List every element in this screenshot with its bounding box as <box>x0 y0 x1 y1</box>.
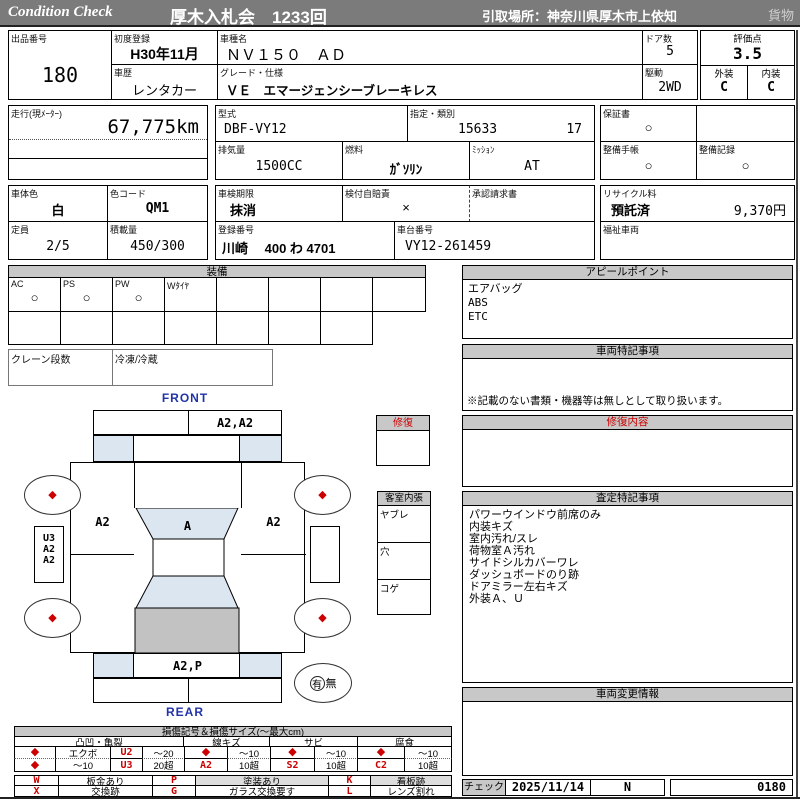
exterior-grade-label: 外装 <box>701 66 747 80</box>
chassis-number-cell: 車台番号 VY12-261459 <box>394 221 595 260</box>
recycle-status-value: 預託済 <box>611 200 650 219</box>
rear-left-fender <box>94 654 134 677</box>
left-panel-divider <box>71 554 134 555</box>
lot-number-cell: 出品番号 180 <box>8 30 112 100</box>
maintenance-book-label: 整備手帳 <box>603 143 639 156</box>
doors-cell: ドア数 5 <box>642 30 698 65</box>
vehicle-notes-disclaimer: ※記載のない書類・機器等は無しとして取り扱います。 <box>467 393 728 408</box>
diamond-icon: ◆ <box>288 747 296 758</box>
equipment-row2-cell-2 <box>60 311 113 345</box>
legend-code-g: G <box>152 785 196 797</box>
mileage-value: 67,775km <box>107 116 199 138</box>
check-date-cell: 2025/11/14 <box>505 779 591 796</box>
chassis-number-label: 車台番号 <box>397 223 433 236</box>
maintenance-record-cell: 整備記録 ○ <box>696 141 795 180</box>
check-inspector-cell: N <box>590 779 665 796</box>
maintenance-book-value: ○ <box>601 158 696 173</box>
mileage-divider-solid <box>9 158 207 159</box>
change-info-panel: 車両変更情報 <box>462 687 793 776</box>
equipment-cell-ps: PS ○ <box>60 277 113 312</box>
legend-desc-g: ガラス交換要す <box>195 785 329 797</box>
appeal-item-abs: ABS <box>468 296 787 310</box>
auction-title: 厚木入札会 1233回 <box>170 3 327 28</box>
body-color-cell: 車体色 白 <box>8 185 108 222</box>
capacity-label: 定員 <box>11 223 29 236</box>
rear-bumper-divider <box>188 679 189 702</box>
hood-line-right <box>241 463 242 508</box>
color-code-label: 色コード <box>110 187 146 200</box>
repair-absent-mark: 無 <box>326 675 337 691</box>
sheet-right-border <box>796 30 798 797</box>
assessment-item-3: 室内汚れ/スレ <box>469 533 786 545</box>
maintenance-record-label: 整備記録 <box>699 143 735 156</box>
body-color-label: 車体色 <box>11 187 38 200</box>
doors-value: 5 <box>643 44 697 59</box>
drive-value: 2WD <box>643 80 697 95</box>
grade-label: グレード・仕様 <box>220 66 283 79</box>
equipment-row2-cell-5 <box>216 311 269 345</box>
equipment-label-wtire: Wﾀｲﾔ <box>167 279 189 292</box>
inspection-value: 抹消 <box>230 200 256 219</box>
legend-dent-text-2: ～10 <box>55 758 111 772</box>
color-code-value: QM1 <box>108 201 207 216</box>
equipment-cell-empty-3 <box>320 277 373 312</box>
warranty-empty-cell <box>696 105 795 142</box>
mileage-cell: 走行(現ﾒｰﾀｰ) 67,775km <box>8 105 208 180</box>
registration-number-label: 登録番号 <box>218 223 254 236</box>
change-info-title: 車両変更情報 <box>463 688 792 702</box>
repair-present-mark: 有 <box>310 676 325 691</box>
insurance-label: 検付自賠責 <box>345 187 390 200</box>
legend-scratch-code: A2 <box>184 758 228 772</box>
exterior-grade-cell: 外装 C <box>700 65 748 100</box>
front-left-fender <box>94 436 134 461</box>
maintenance-book-cell: 整備手帳 ○ <box>600 141 697 180</box>
legend-corrosion-code: C2 <box>357 758 405 772</box>
repair-mini-box: 修復 <box>376 415 430 466</box>
damage-marker-icon: ◆ <box>318 490 326 501</box>
cabin-interior-box: 客室内張 ヤブレ 穴 コゲ <box>377 491 431 615</box>
rear-fender-strip: A2,P <box>93 653 282 678</box>
recycle-fee-value: 9,370円 <box>734 200 786 219</box>
score-value: 3.5 <box>701 44 794 63</box>
equipment-cell-empty-2 <box>268 277 321 312</box>
diamond-icon: ◆ <box>31 760 39 771</box>
drive-label: 駆動 <box>645 66 663 79</box>
rear-right-fender <box>239 654 281 677</box>
refrigeration-label: 冷凍/冷蔵 <box>115 351 158 366</box>
transmission-cell: ﾐｯｼｮﾝ AT <box>469 141 595 180</box>
damage-marker-icon: ◆ <box>48 613 56 624</box>
equipment-row2-cell-4 <box>164 311 217 345</box>
equipment-cell-wtire: Wﾀｲﾔ <box>164 277 217 312</box>
check-label-cell: チェック <box>462 779 506 796</box>
legend-corrosion-size-2: 10超 <box>404 758 452 772</box>
refrigeration-cell: 冷凍/冷蔵 <box>112 349 273 386</box>
right-front-panel-damage: A2 <box>241 515 306 529</box>
lot-number-label: 出品番号 <box>11 32 47 45</box>
car-body: A A2 A2 <box>70 462 305 653</box>
equipment-value-ps: ○ <box>61 290 112 305</box>
repair-history-flag: 有無 <box>294 663 352 703</box>
drive-cell: 駆動 2WD <box>642 64 698 100</box>
crane-label: クレーン段数 <box>11 351 71 366</box>
load-capacity-label: 積載量 <box>110 223 137 236</box>
damage-marker-icon: ◆ <box>48 490 56 501</box>
equipment-row2-cell-6 <box>268 311 321 345</box>
capacity-cell: 定員 2/5 <box>8 221 108 260</box>
legend-code-x: X <box>14 785 59 797</box>
mileage-divider-dotted <box>9 139 207 140</box>
left-side-damage-1: U3 <box>35 533 63 544</box>
equipment-row2-cell-7 <box>320 311 373 345</box>
grade-value: ＶＥ エマージェンシーブレーキレス <box>226 80 438 99</box>
maintenance-record-value: ○ <box>697 158 794 173</box>
approval-request-label: 承認請求書 <box>472 187 517 200</box>
class-number-value: 15633 <box>458 122 497 137</box>
front-fender-strip <box>93 435 282 462</box>
grade-cell: グレード・仕様 ＶＥ エマージェンシーブレーキレス <box>217 64 643 100</box>
warranty-label: 保証書 <box>603 107 630 120</box>
legend-rust-code: S2 <box>270 758 315 772</box>
insurance-value: × <box>343 200 469 215</box>
insurance-cell: 検付自賠責 × <box>342 185 470 222</box>
inspection-label: 車検期限 <box>218 187 254 200</box>
crane-cell: クレーン段数 <box>8 349 113 386</box>
diamond-icon: ◆ <box>202 747 210 758</box>
assessment-notes-title: 査定特記事項 <box>463 492 792 506</box>
welfare-vehicle-label: 福祉車両 <box>603 223 639 236</box>
equipment-value-pw: ○ <box>113 290 164 305</box>
appeal-item-airbag: エアバッグ <box>468 282 787 296</box>
equipment-value-ac: ○ <box>9 290 60 305</box>
class-number-label: 指定・類別 <box>410 107 455 120</box>
recycle-fee-cell: リサイクル料 預託済 9,370円 <box>600 185 795 222</box>
wheel-rear-left: ◆ <box>24 598 81 638</box>
welfare-vehicle-cell: 福祉車両 <box>600 221 795 260</box>
load-capacity-cell: 積載量 450/300 <box>107 221 208 260</box>
assessment-item-2: 内装キズ <box>469 521 786 533</box>
legend-dent-marker-2: ◆ <box>14 758 56 772</box>
transmission-label: ﾐｯｼｮﾝ <box>472 143 495 156</box>
sheet-number-cell: 0180 <box>670 779 793 796</box>
diamond-icon: ◆ <box>31 747 39 758</box>
fuel-value: ｶﾞｿﾘﾝ <box>343 159 469 178</box>
score-cell: 評価点 3.5 <box>700 30 795 66</box>
model-code-label: 型式 <box>218 107 236 120</box>
wheel-front-right: ◆ <box>294 475 351 515</box>
history-value: レンタカー <box>112 80 217 99</box>
first-registration-value: H30年11月 <box>112 44 217 64</box>
hood-line-left <box>134 463 135 508</box>
assessment-item-6: ダッシュボードのり跡 <box>469 569 786 581</box>
model-code-cell: 型式 DBF-VY12 <box>215 105 408 142</box>
fuel-cell: 燃料 ｶﾞｿﾘﾝ <box>342 141 470 180</box>
legend-dent-code-2: U3 <box>110 758 143 772</box>
equipment-cell-empty-1 <box>216 277 269 312</box>
brand-logo: Condition Check <box>8 4 113 21</box>
front-right-fender <box>239 436 281 461</box>
damage-marker-icon: ◆ <box>318 613 326 624</box>
fuel-label: 燃料 <box>345 143 363 156</box>
repair-details-panel: 修復内容 <box>462 415 793 487</box>
interior-grade-value: C <box>748 80 794 95</box>
legend-rust-size-2: 10超 <box>314 758 358 772</box>
left-side-damage-3: A2 <box>35 555 63 566</box>
history-label: 車歴 <box>114 66 132 79</box>
legend-dent-size-2: 20超 <box>142 758 185 772</box>
front-direction-label: FRONT <box>130 391 240 405</box>
legend-desc-l: レンズ割れ <box>370 785 452 797</box>
equipment-cell-ac: AC ○ <box>8 277 61 312</box>
equipment-label-ac: AC <box>11 279 24 289</box>
windshield-damage: A <box>134 519 241 533</box>
repair-mini-title: 修復 <box>377 416 429 431</box>
cabin-interior-title: 客室内張 <box>378 492 430 506</box>
first-registration-cell: 初度登録 H30年11月 <box>111 30 218 65</box>
rear-window-shape <box>136 576 238 608</box>
left-side-damage-2: A2 <box>35 544 63 555</box>
capacity-value: 2/5 <box>9 239 107 254</box>
wheel-rear-right: ◆ <box>294 598 351 638</box>
load-capacity-value: 450/300 <box>108 239 207 254</box>
cabin-interior-row-burn: コゲ <box>378 580 430 613</box>
left-front-panel-damage: A2 <box>71 515 134 529</box>
repair-details-title: 修復内容 <box>463 416 792 430</box>
auction-sheet: Condition Check 厚木入札会 1233回 引取場所：神奈川県厚木市… <box>0 0 800 800</box>
sheet-bottom-border <box>0 797 800 799</box>
class-number-value-2: 17 <box>566 122 582 137</box>
vehicle-notes-panel: 車両特記事項 ※記載のない書類・機器等は無しとして取り扱います。 <box>462 344 793 411</box>
cabin-interior-row-hole: 穴 <box>378 543 430 580</box>
right-panel-divider <box>241 554 306 555</box>
score-label: 評価点 <box>701 31 794 45</box>
front-bumper: A2,A2 <box>93 410 282 435</box>
assessment-item-8: 外装Ａ、Ｕ <box>469 593 786 605</box>
mileage-label: 走行(現ﾒｰﾀｰ) <box>11 107 62 120</box>
diamond-icon: ◆ <box>377 747 385 758</box>
appeal-points-panel: アピールポイント エアバッグ ABS ETC <box>462 265 793 339</box>
interior-grade-cell: 内装 C <box>747 65 795 100</box>
displacement-cell: 排気量 1500CC <box>215 141 343 180</box>
class-number-cell: 指定・類別 15633 17 <box>407 105 595 142</box>
recycle-fee-label: リサイクル料 <box>603 187 657 200</box>
displacement-value: 1500CC <box>216 159 342 174</box>
body-color-value: 白 <box>9 200 107 219</box>
assessment-item-7: ドアミラー左右キズ <box>469 581 786 593</box>
front-bumper-damage: A2,A2 <box>188 416 282 430</box>
history-cell: 車歴 レンタカー <box>111 64 218 100</box>
model-name-value: ＮＶ１５０ ＡＤ <box>226 44 346 65</box>
equipment-label-ps: PS <box>63 279 75 289</box>
approval-request-cell: 承認請求書 <box>469 185 595 222</box>
warranty-cell: 保証書 ○ <box>600 105 697 142</box>
equipment-row2-cell-3 <box>112 311 165 345</box>
top-bar: Condition Check 厚木入札会 1233回 引取場所：神奈川県厚木市… <box>0 0 800 27</box>
model-code-value: DBF-VY12 <box>224 122 287 137</box>
legend-desc-x: 交換跡 <box>58 785 153 797</box>
cabin-interior-row-tear: ヤブレ <box>378 506 430 543</box>
rear-panel-damage: A2,P <box>134 659 241 673</box>
registration-number-cell: 登録番号 川崎 400 わ 4701 <box>215 221 395 260</box>
left-side-damage-box: U3 A2 A2 <box>34 526 64 583</box>
equipment-label-pw: PW <box>115 279 130 289</box>
color-code-cell: 色コード QM1 <box>107 185 208 222</box>
assessment-item-4: 荷物室Ａ汚れ <box>469 545 786 557</box>
right-side-damage-box <box>310 526 340 583</box>
appeal-item-etc: ETC <box>468 310 787 324</box>
interior-grade-label: 内装 <box>748 66 794 80</box>
assessment-item-5: サイドシルカバーワレ <box>469 557 786 569</box>
roof-shape <box>153 539 224 576</box>
rear-bumper <box>93 678 282 703</box>
category-badge: 貨物 <box>768 5 794 24</box>
wheel-front-left: ◆ <box>24 475 81 515</box>
equipment-row2-cell-1 <box>8 311 61 345</box>
model-name-cell: 車種名 ＮＶ１５０ ＡＤ <box>217 30 643 65</box>
warranty-value: ○ <box>601 120 696 135</box>
vehicle-notes-title: 車両特記事項 <box>463 345 792 359</box>
exterior-grade-value: C <box>701 80 747 95</box>
registration-number-value: 川崎 400 わ 4701 <box>222 238 335 257</box>
lot-number-value: 180 <box>9 63 111 87</box>
inspection-cell: 車検期限 抹消 <box>215 185 343 222</box>
legend-scratch-size-2: 10超 <box>227 758 271 772</box>
displacement-label: 排気量 <box>218 143 245 156</box>
transmission-value: AT <box>470 159 594 174</box>
legend-code-l: L <box>328 785 371 797</box>
pickup-location: 引取場所：神奈川県厚木市上依知 <box>482 6 677 25</box>
equipment-cell-pw: PW ○ <box>112 277 165 312</box>
equipment-cell-empty-4 <box>372 277 426 312</box>
cargo-area-shape <box>135 608 239 653</box>
assessment-item-1: パワーウインドウ前席のみ <box>469 509 786 521</box>
chassis-number-value: VY12-261459 <box>405 239 491 254</box>
rear-direction-label: REAR <box>130 705 240 719</box>
assessment-notes-panel: 査定特記事項 パワーウインドウ前席のみ 内装キズ 室内汚れ/スレ 荷物室Ａ汚れ … <box>462 491 793 683</box>
appeal-points-title: アピールポイント <box>463 266 792 280</box>
